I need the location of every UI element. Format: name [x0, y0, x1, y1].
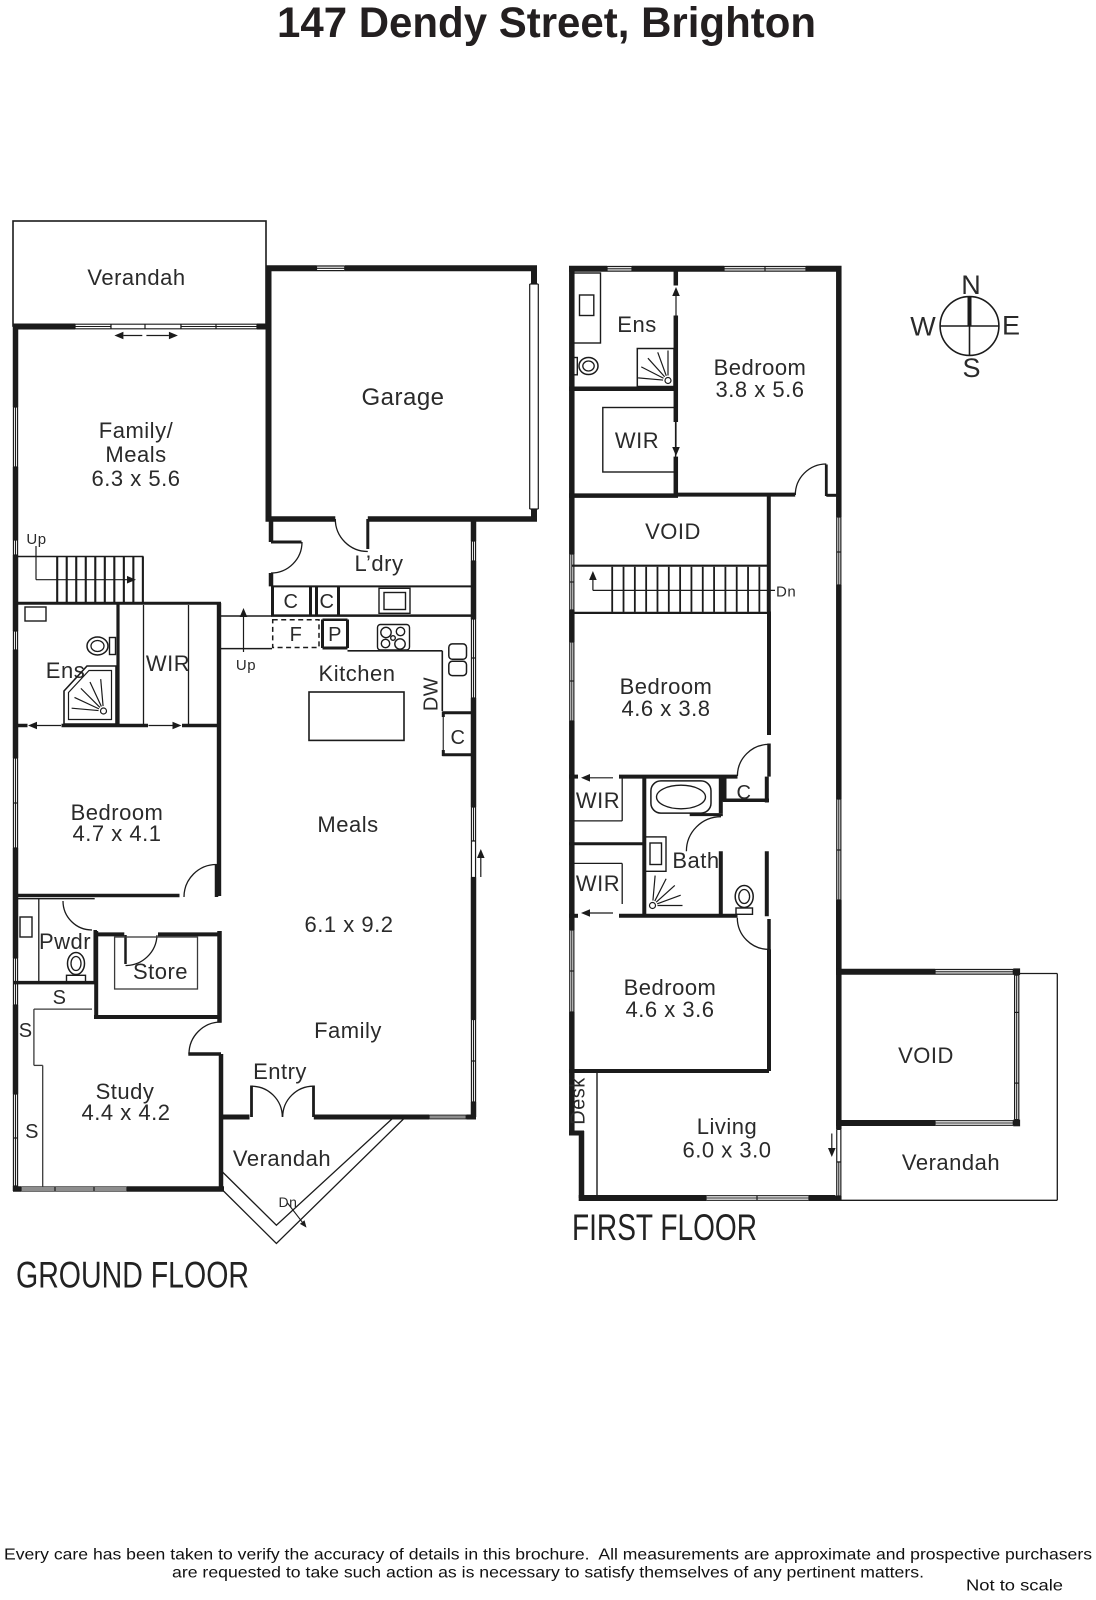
- svg-text:Living: Living: [697, 1114, 757, 1139]
- svg-text:Up: Up: [26, 531, 46, 548]
- svg-text:4.6 x 3.6: 4.6 x 3.6: [626, 997, 715, 1022]
- svg-text:4.7 x 4.1: 4.7 x 4.1: [73, 821, 162, 846]
- svg-text:6.0 x 3.0: 6.0 x 3.0: [683, 1138, 772, 1163]
- svg-text:WIR: WIR: [146, 651, 190, 676]
- svg-text:Meals: Meals: [317, 812, 378, 837]
- svg-text:DW: DW: [421, 677, 443, 711]
- svg-text:C: C: [737, 782, 752, 804]
- svg-text:GROUND FLOOR: GROUND FLOOR: [16, 1255, 249, 1296]
- svg-text:4.4 x 4.2: 4.4 x 4.2: [82, 1100, 171, 1125]
- svg-text:Meals: Meals: [105, 442, 166, 467]
- svg-text:W: W: [910, 312, 936, 342]
- svg-text:C: C: [320, 591, 335, 613]
- svg-text:Up: Up: [236, 657, 256, 674]
- svg-text:E: E: [1002, 311, 1020, 341]
- svg-text:are requested to take such act: are requested to take such action as is …: [172, 1565, 924, 1582]
- svg-text:WIR: WIR: [576, 788, 620, 813]
- svg-text:147 Dendy Street, Brighton: 147 Dendy Street, Brighton: [277, 0, 816, 47]
- svg-text:6.3 x 5.6: 6.3 x 5.6: [92, 466, 181, 491]
- svg-text:Family: Family: [314, 1018, 382, 1043]
- svg-text:Verandah: Verandah: [902, 1150, 1000, 1175]
- svg-text:Every care has been taken to v: Every care has been taken to verify the …: [4, 1547, 1092, 1564]
- svg-text:C: C: [284, 591, 299, 613]
- svg-text:6.1 x 9.2: 6.1 x 9.2: [305, 912, 394, 937]
- svg-text:Ens: Ens: [617, 312, 656, 337]
- svg-text:Desk: Desk: [568, 1077, 590, 1125]
- svg-text:L’dry: L’dry: [355, 551, 404, 576]
- svg-text:Pwdr: Pwdr: [39, 929, 91, 954]
- svg-text:Bath: Bath: [672, 848, 719, 873]
- svg-text:3.8 x 5.6: 3.8 x 5.6: [716, 377, 805, 402]
- svg-text:C: C: [451, 727, 466, 749]
- svg-text:FIRST FLOOR: FIRST FLOOR: [572, 1207, 757, 1248]
- svg-text:Family/: Family/: [99, 418, 174, 443]
- svg-text:F: F: [290, 624, 303, 646]
- svg-text:Ens: Ens: [46, 658, 85, 683]
- svg-text:WIR: WIR: [615, 428, 659, 453]
- svg-text:Garage: Garage: [361, 384, 444, 411]
- svg-text:Entry: Entry: [253, 1059, 307, 1084]
- svg-text:Kitchen: Kitchen: [319, 661, 396, 686]
- svg-text:Store: Store: [133, 959, 188, 984]
- svg-text:S: S: [25, 1121, 39, 1143]
- svg-text:P: P: [328, 624, 342, 646]
- svg-text:Dn: Dn: [776, 584, 796, 601]
- svg-text:N: N: [961, 270, 981, 300]
- svg-text:VOID: VOID: [898, 1043, 954, 1068]
- svg-text:S: S: [962, 353, 980, 383]
- svg-text:Not to scale: Not to scale: [966, 1578, 1063, 1595]
- svg-text:Verandah: Verandah: [233, 1146, 331, 1171]
- svg-text:S: S: [53, 987, 67, 1009]
- svg-text:4.6 x 3.8: 4.6 x 3.8: [622, 696, 711, 721]
- svg-text:WIR: WIR: [576, 871, 620, 896]
- svg-text:VOID: VOID: [645, 519, 701, 544]
- svg-text:S: S: [19, 1020, 33, 1042]
- svg-text:Verandah: Verandah: [87, 265, 185, 290]
- svg-text:Dn: Dn: [279, 1194, 298, 1210]
